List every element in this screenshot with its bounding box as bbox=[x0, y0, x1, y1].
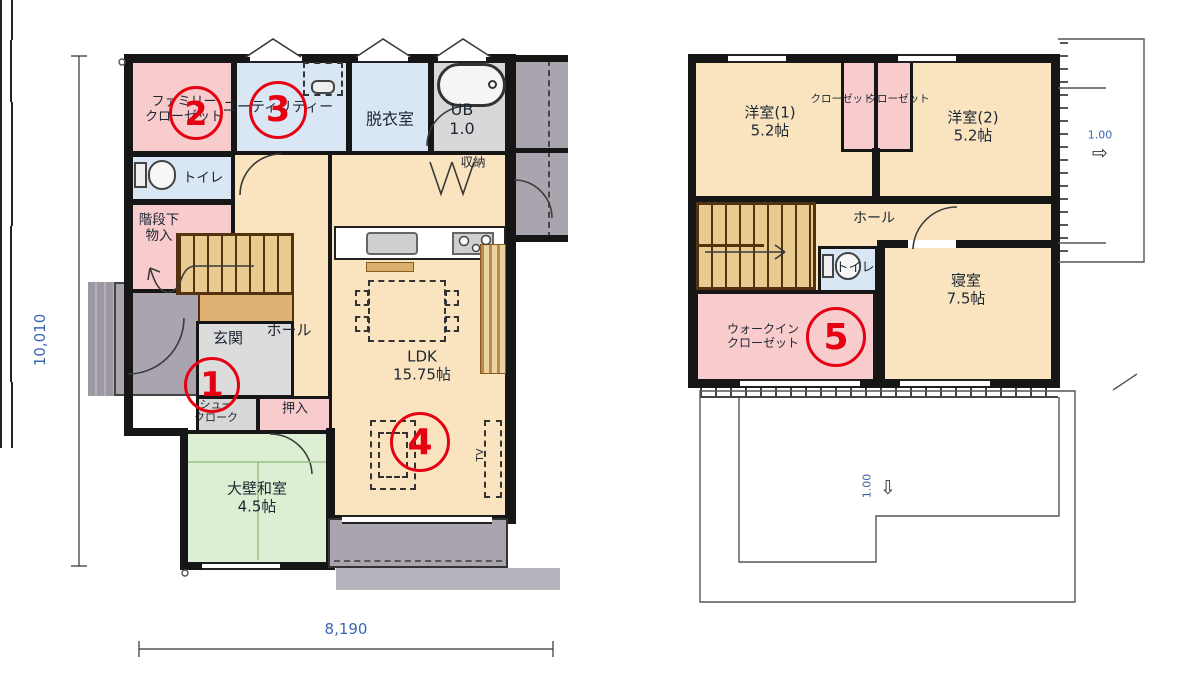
tv-label: TV bbox=[475, 449, 487, 462]
closet1-label: クローゼット bbox=[811, 93, 874, 105]
marker-5-walk-in-closet: 5 bbox=[806, 307, 866, 367]
toilet-tank-icon-1f bbox=[134, 162, 147, 188]
height-dimension-label: 10,010 bbox=[32, 314, 50, 367]
roof-slope-bottom-label: 1.00 bbox=[862, 474, 875, 499]
window bbox=[0, 0, 13, 40]
terrace-dashed-line bbox=[334, 560, 502, 562]
washbasin-icon bbox=[311, 80, 335, 94]
western-room1-label: 洋室(1) 5.2帖 bbox=[744, 104, 795, 139]
balcony-railing bbox=[700, 388, 1058, 398]
bath-drain-icon bbox=[488, 80, 497, 89]
roof-slope-bottom-arrow-icon: ⇩ bbox=[880, 477, 896, 499]
wall-segment bbox=[688, 54, 696, 388]
wall-segment bbox=[1051, 54, 1060, 388]
window bbox=[202, 562, 280, 570]
toilet-tank-icon-2f bbox=[822, 254, 834, 278]
window bbox=[0, 382, 13, 448]
kitchen-sink bbox=[366, 232, 418, 255]
window bbox=[358, 54, 408, 63]
entrance-label: 玄関 bbox=[213, 330, 243, 348]
window bbox=[0, 338, 12, 382]
wall-segment bbox=[124, 54, 133, 436]
chair-dashed bbox=[355, 316, 369, 332]
window bbox=[0, 166, 13, 226]
walk-in-closet-label: ウォークイン クローゼット bbox=[727, 322, 799, 350]
bedroom-door-opening bbox=[908, 240, 956, 248]
window bbox=[728, 54, 786, 63]
wall-segment bbox=[516, 235, 568, 242]
marker-4-ldk: 4 bbox=[390, 412, 450, 472]
window bbox=[898, 54, 956, 63]
roof-slope-right-label: 1.00 bbox=[1088, 130, 1113, 143]
chair-dashed bbox=[355, 290, 369, 306]
wall-segment bbox=[180, 428, 188, 570]
wall-segment bbox=[507, 54, 516, 524]
storage-label: 収納 bbox=[460, 156, 485, 171]
marker-2-family-closet: 2 bbox=[169, 86, 223, 140]
dining-table-dashed bbox=[368, 280, 446, 342]
dimension-line-left bbox=[71, 56, 87, 566]
unit-bath-label: UB 1.0 bbox=[449, 101, 474, 139]
kitchen-shelf bbox=[366, 262, 414, 272]
closet2-label: クローゼット bbox=[867, 93, 930, 105]
window bbox=[740, 379, 860, 388]
hall-2f-label: ホール bbox=[853, 211, 895, 228]
chair-dashed bbox=[445, 316, 459, 332]
wall-segment bbox=[877, 240, 885, 387]
toilet-bowl-icon-1f bbox=[148, 160, 176, 190]
window bbox=[438, 54, 486, 63]
window bbox=[900, 379, 990, 388]
chair-dashed bbox=[445, 290, 459, 306]
window bbox=[250, 54, 302, 63]
dimension-line-bottom bbox=[139, 641, 553, 657]
terrace-extension bbox=[336, 568, 560, 590]
stairs-landing-1f bbox=[198, 293, 294, 323]
marker-3-utility: 3 bbox=[249, 81, 307, 139]
porch-steps bbox=[88, 282, 114, 396]
wall-segment bbox=[877, 240, 1059, 248]
floor-plan-canvas: ファミリー クローゼット ユーティリティー 脱衣室 UB 1.0 トイレ 階段下… bbox=[0, 0, 1184, 675]
ldk-label: LDK 15.75帖 bbox=[393, 348, 451, 383]
wood-counter bbox=[480, 244, 506, 374]
window bbox=[0, 102, 13, 166]
wall-segment bbox=[124, 428, 188, 436]
width-dimension-label: 8,190 bbox=[325, 621, 368, 639]
window bbox=[0, 282, 12, 338]
dressing-room bbox=[348, 58, 432, 155]
wall-segment bbox=[516, 55, 568, 62]
roof-corner-diagonal bbox=[1113, 374, 1137, 390]
survey-point bbox=[182, 570, 188, 576]
eave-hatch bbox=[1060, 42, 1068, 260]
entrance-door-opening bbox=[0, 226, 12, 282]
stairs-1f bbox=[176, 233, 294, 295]
under-stairs-storage-label: 階段下 物入 bbox=[139, 213, 180, 245]
oshiire-label: 押入 bbox=[282, 401, 308, 416]
roof-outline-bottom-inner bbox=[739, 397, 1059, 562]
marker-1-entrance: 1 bbox=[184, 357, 240, 413]
western-room2-label: 洋室(2) 5.2帖 bbox=[947, 109, 998, 144]
toilet-2f-label: トイレ bbox=[835, 260, 874, 275]
sliding-window bbox=[342, 515, 492, 524]
japanese-room-label: 大壁和室 4.5帖 bbox=[227, 480, 287, 515]
bedroom-label: 寝室 7.5帖 bbox=[947, 272, 986, 307]
toilet-1f-label: トイレ bbox=[183, 171, 224, 187]
roof-slope-right-arrow-icon: ⇨ bbox=[1092, 142, 1108, 164]
window bbox=[0, 40, 12, 102]
dressing-room-label: 脱衣室 bbox=[366, 111, 414, 130]
wall-segment bbox=[516, 148, 568, 153]
stairs-divider bbox=[694, 244, 764, 247]
hall-1f-label: ホール bbox=[266, 322, 311, 340]
